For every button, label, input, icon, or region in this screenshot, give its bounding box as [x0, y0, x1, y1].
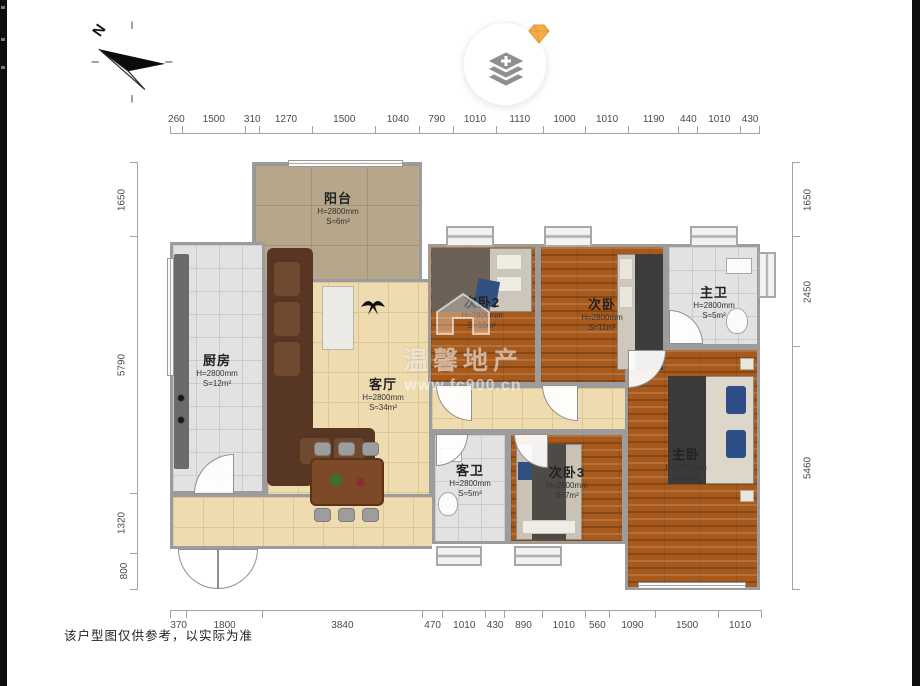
nightstand — [740, 358, 754, 370]
label-bedroom: 次卧H=2800mmS≈11m² — [542, 294, 662, 334]
stove-burner — [177, 394, 185, 402]
sofa-cushion — [274, 342, 300, 376]
bedroom2-window — [446, 226, 494, 247]
bird-icon — [360, 296, 386, 318]
north-compass: N — [86, 16, 178, 108]
nightstand — [740, 490, 754, 502]
label-guest-bath: 客卫H=2800mmS≈5m² — [430, 460, 510, 500]
label-bedroom3: 次卧3H=2800mmS≈7m² — [510, 462, 624, 502]
master-bed-window — [638, 582, 746, 589]
label-balcony: 阳台H=2800mmS≈6m² — [282, 188, 394, 228]
stove-burner — [177, 416, 185, 424]
dining-table — [310, 458, 384, 506]
label-master-bath: 主卫H=2800mmS≈5m² — [668, 282, 760, 322]
dim-row-bottom: 3701800384047010104308901010560109015001… — [170, 610, 762, 632]
master-bed-pillow — [726, 386, 746, 414]
label-bedroom2: 次卧2H=2800mmS≈10m² — [428, 292, 536, 332]
label-kitchen: 厨房H=2800mmS=12m² — [172, 350, 262, 390]
balcony-window — [288, 160, 403, 167]
dining-chair — [338, 508, 355, 522]
guest-bath-window — [436, 546, 482, 566]
bedroom-window — [544, 226, 592, 247]
label-master-bedroom: 主卧H=2800mmS≈18m² — [634, 444, 738, 484]
label-living: 客厅H=2800mmS≈34m² — [328, 374, 438, 414]
entry-door-left — [178, 549, 218, 589]
dim-row-right: 165024505460 — [792, 162, 816, 590]
dining-chair — [362, 442, 379, 456]
disclaimer-text: 该户型图仅供参考，以实际为准 — [64, 625, 253, 644]
dining-chair — [338, 442, 355, 456]
right-edge-strip — [912, 0, 920, 686]
bedroom-pillow — [619, 258, 633, 280]
room-entry — [170, 494, 432, 549]
dining-chair — [314, 508, 331, 522]
dining-chair — [314, 442, 331, 456]
dim-row-top: 2601500310127015001040790101011101000101… — [170, 112, 760, 134]
console-table — [322, 286, 354, 350]
table-dish — [356, 478, 365, 487]
right-wall-window — [758, 252, 776, 298]
entry-door-right — [218, 549, 258, 589]
layers-icon — [482, 39, 530, 91]
table-plant — [330, 474, 342, 486]
master-bath-sink — [726, 258, 752, 274]
bedroom3-pillow — [522, 520, 576, 534]
bedroom2-pillow — [496, 276, 522, 292]
floorplan-page: N 26015003101270150010407901010111010001… — [0, 0, 920, 686]
dining-chair — [362, 508, 379, 522]
sofa-cushion — [274, 302, 300, 336]
bedroom2-pillow — [496, 254, 522, 270]
dim-row-left: 165057901320800 — [116, 162, 138, 590]
bedroom3-window — [514, 546, 562, 566]
diamond-icon — [527, 24, 551, 44]
left-edge-strip — [0, 0, 7, 686]
master-bath-window — [690, 226, 738, 247]
sofa-cushion — [274, 262, 300, 296]
floorplan: 阳台H=2800mmS≈6m² 厨房H=2800mmS=12m² 客厅H=280… — [170, 162, 760, 590]
